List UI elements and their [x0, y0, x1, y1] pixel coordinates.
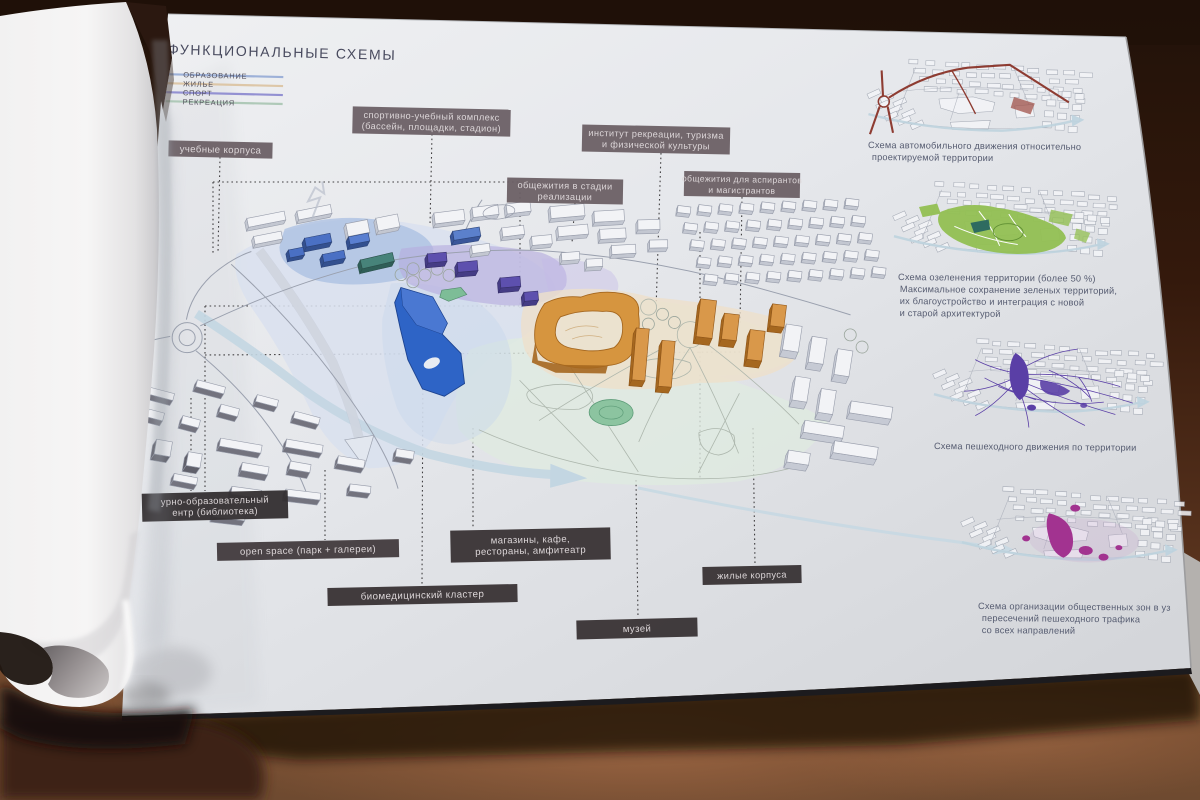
svg-text:их благоустройство и интеграци: их благоустройство и интеграция с новой: [900, 296, 1084, 308]
svg-text:со всех направлений: со всех направлений: [982, 625, 1076, 636]
svg-text:проектируемой территории: проектируемой территории: [872, 152, 994, 163]
svg-text:музей: музей: [623, 623, 652, 635]
svg-text:пересечений пешеходного трафик: пересечений пешеходного трафика: [982, 613, 1141, 624]
svg-text:жилые корпуса: жилые корпуса: [717, 570, 787, 581]
svg-text:и магистрантов: и магистрантов: [708, 185, 775, 196]
svg-text:общежития для аспирантов: общежития для аспирантов: [682, 173, 803, 185]
svg-text:реализации: реализации: [537, 191, 592, 202]
svg-text:ентр (библиотека): ентр (библиотека): [172, 505, 258, 518]
svg-text:и старой архитектурой: и старой архитектурой: [900, 308, 1001, 319]
svg-text:Схема организации общественных: Схема организации общественных зон в уз: [978, 601, 1171, 613]
svg-text:Схема озеленения территории (б: Схема озеленения территории (более 50 %): [898, 272, 1096, 284]
svg-text:общежития в стадии: общежития в стадии: [517, 180, 612, 192]
svg-text:Схема автомобильного движения: Схема автомобильного движения относитель…: [868, 140, 1081, 152]
svg-text:рестораны, амфитеатр: рестораны, амфитеатр: [475, 545, 586, 558]
svg-text:учебные корпуса: учебные корпуса: [180, 144, 262, 157]
svg-text:Максимальное сохранение зелены: Максимальное сохранение зеленых территор…: [900, 284, 1117, 296]
svg-text:Схема пешеходного движения по: Схема пешеходного движения по территории: [934, 441, 1137, 453]
svg-text:РЕКРЕАЦИЯ: РЕКРЕАЦИЯ: [183, 97, 235, 107]
